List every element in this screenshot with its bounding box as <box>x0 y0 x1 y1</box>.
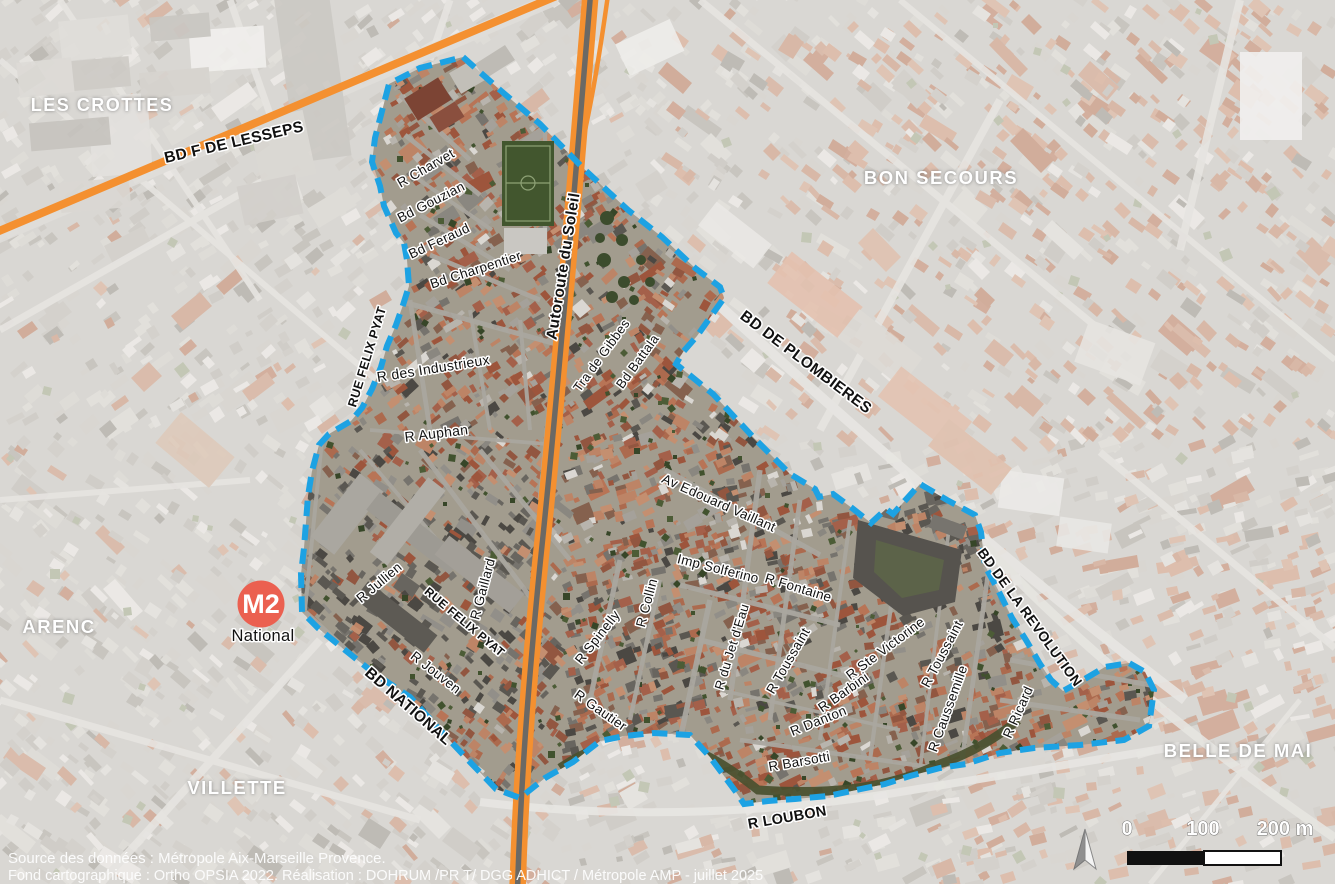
svg-text:Fond cartographique : Ortho OP: Fond cartographique : Ortho OPSIA 2022. … <box>8 868 763 884</box>
svg-text:LES CROTTES: LES CROTTES <box>31 95 174 115</box>
svg-text:M2: M2 <box>242 589 280 619</box>
svg-text:BON SECOURS: BON SECOURS <box>864 167 1018 188</box>
svg-text:BELLE DE MAI: BELLE DE MAI <box>1164 740 1313 761</box>
svg-text:VILLETTE: VILLETTE <box>187 777 286 798</box>
svg-text:0: 0 <box>1121 818 1132 840</box>
svg-text:Source des données : Métropole: Source des données : Métropole Aix-Marse… <box>8 850 386 867</box>
svg-text:ARENC: ARENC <box>22 616 95 637</box>
svg-text:200 m: 200 m <box>1257 818 1314 840</box>
svg-text:National: National <box>232 627 295 645</box>
svg-text:100: 100 <box>1186 818 1219 840</box>
